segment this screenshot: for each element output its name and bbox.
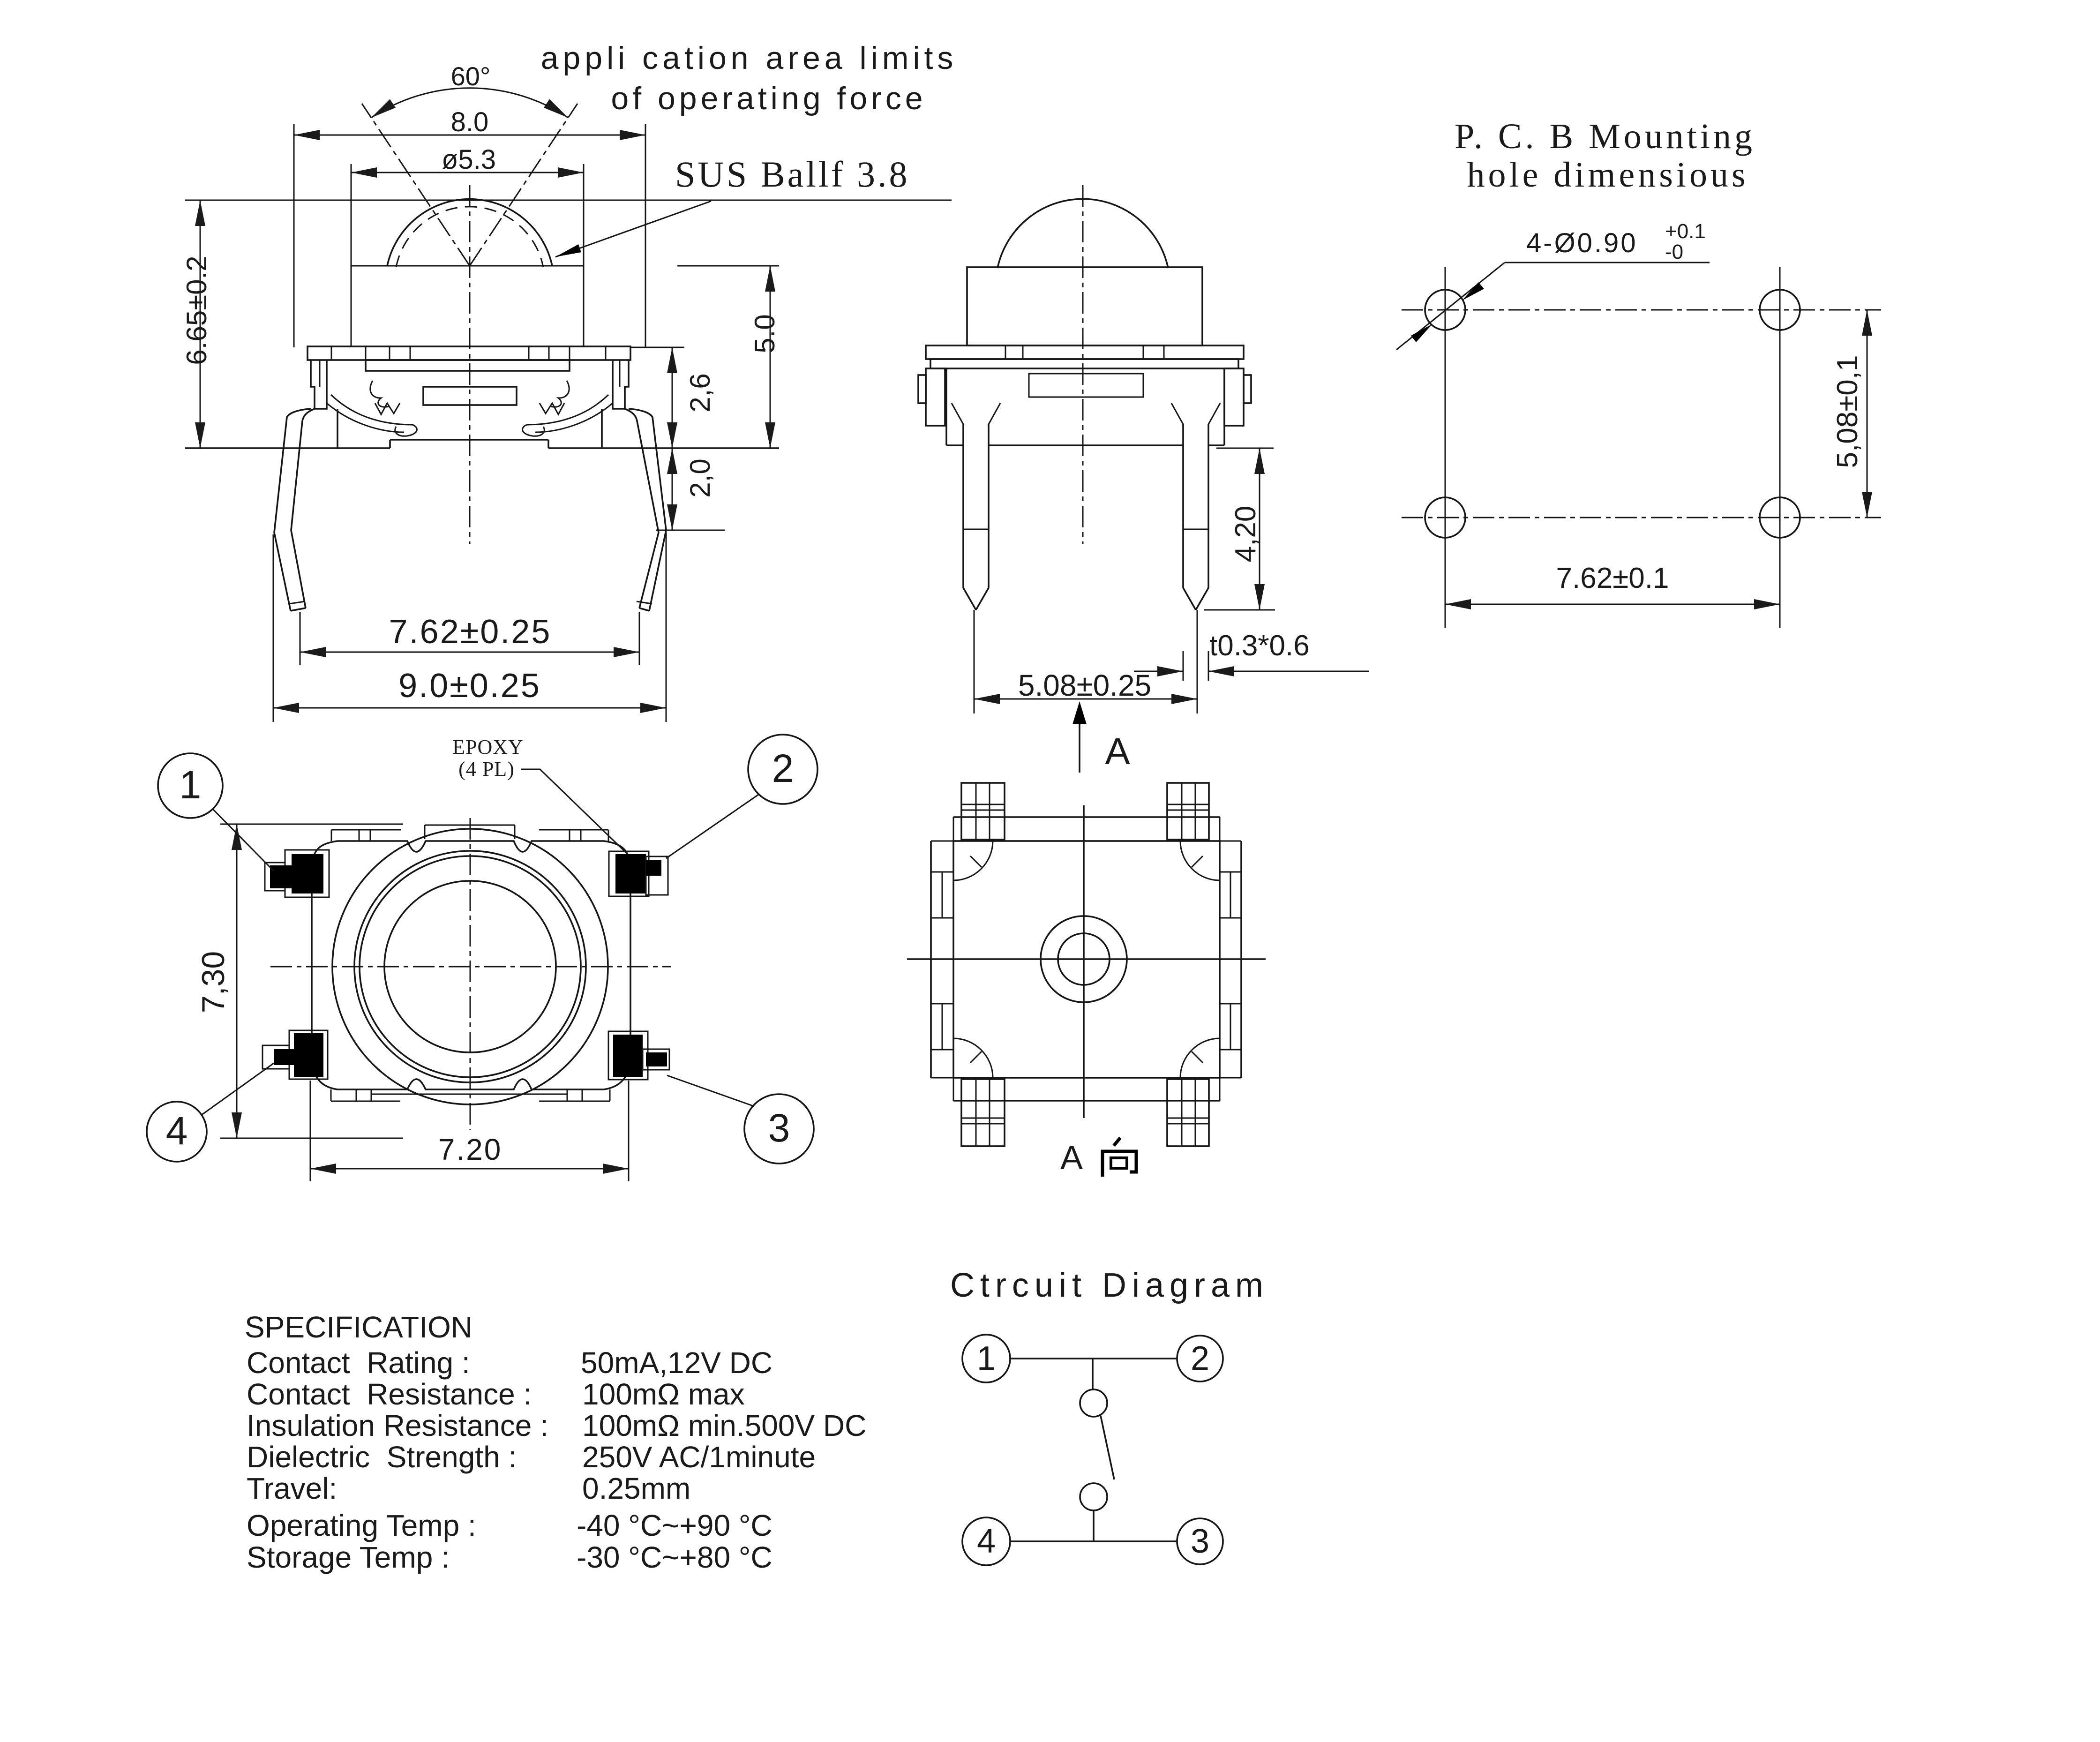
svg-text:7.62±0.25: 7.62±0.25 bbox=[389, 613, 552, 651]
svg-text:1: 1 bbox=[977, 1340, 996, 1377]
svg-text:t0.3*0.6: t0.3*0.6 bbox=[1209, 630, 1310, 662]
svg-text:100mΩ max: 100mΩ max bbox=[582, 1377, 745, 1411]
svg-text:appli cation area limits: appli cation area limits bbox=[541, 40, 958, 76]
svg-text:A: A bbox=[1060, 1139, 1083, 1177]
svg-text:5,08±0,1: 5,08±0,1 bbox=[1831, 355, 1864, 468]
svg-text:2,6: 2,6 bbox=[684, 373, 716, 412]
svg-text:P. C. B Mounting: P. C. B Mounting bbox=[1455, 117, 1755, 156]
svg-text:of operating force: of operating force bbox=[611, 81, 926, 116]
svg-text:+0.1: +0.1 bbox=[1665, 220, 1706, 243]
svg-text:5.08±0.25: 5.08±0.25 bbox=[1018, 668, 1151, 702]
svg-text:4,20: 4,20 bbox=[1230, 506, 1262, 563]
svg-text:SPECIFICATION: SPECIFICATION bbox=[245, 1310, 472, 1344]
svg-text:Storage Temp :: Storage Temp : bbox=[247, 1540, 450, 1574]
svg-text:4: 4 bbox=[166, 1109, 188, 1153]
svg-text:Contact Rating :: Contact Rating : bbox=[247, 1346, 470, 1380]
svg-text:50mA,12V DC: 50mA,12V DC bbox=[581, 1346, 772, 1380]
svg-text:hole dimensious: hole dimensious bbox=[1467, 155, 1748, 195]
svg-text:Insulation Resistance :: Insulation Resistance : bbox=[247, 1409, 548, 1442]
svg-text:ø5.3: ø5.3 bbox=[442, 144, 496, 175]
svg-text:Travel:: Travel: bbox=[247, 1472, 337, 1505]
svg-text:0.25mm: 0.25mm bbox=[582, 1472, 690, 1505]
svg-text:6.65±0.2: 6.65±0.2 bbox=[181, 255, 212, 365]
svg-text:4: 4 bbox=[977, 1523, 996, 1560]
svg-text:Ctrcuit Diagram: Ctrcuit Diagram bbox=[950, 1267, 1269, 1304]
svg-text:7.20: 7.20 bbox=[438, 1133, 502, 1166]
svg-text:2,0: 2,0 bbox=[684, 458, 716, 497]
svg-text:EPOXY: EPOXY bbox=[452, 736, 524, 758]
svg-text:-30 °C~+80 °C: -30 °C~+80 °C bbox=[577, 1540, 772, 1574]
svg-text:60°: 60° bbox=[451, 61, 491, 91]
svg-text:2: 2 bbox=[772, 746, 794, 790]
svg-text:9.0±0.25: 9.0±0.25 bbox=[398, 667, 541, 705]
svg-text:2: 2 bbox=[1191, 1340, 1209, 1377]
svg-text:-0: -0 bbox=[1665, 240, 1683, 263]
svg-text:-40 °C~+90 °C: -40 °C~+90 °C bbox=[577, 1509, 772, 1542]
svg-text:1: 1 bbox=[180, 763, 202, 807]
svg-text:Contact Resistance :: Contact Resistance : bbox=[247, 1377, 532, 1411]
svg-text:3: 3 bbox=[1191, 1523, 1209, 1560]
svg-text:SUS Ballf 3.8: SUS Ballf 3.8 bbox=[675, 154, 910, 195]
svg-text:100mΩ min.500V DC: 100mΩ min.500V DC bbox=[582, 1409, 866, 1442]
svg-text:7.62±0.1: 7.62±0.1 bbox=[1556, 562, 1669, 594]
svg-text:(4 PL): (4 PL) bbox=[458, 758, 515, 781]
svg-text:A: A bbox=[1105, 730, 1130, 772]
svg-text:250V AC/1minute: 250V AC/1minute bbox=[582, 1440, 816, 1474]
svg-text:3: 3 bbox=[768, 1106, 790, 1150]
svg-text:7,30: 7,30 bbox=[195, 951, 231, 1013]
svg-text:Operating Temp :: Operating Temp : bbox=[247, 1509, 476, 1542]
svg-text:5.0: 5.0 bbox=[749, 314, 780, 353]
svg-text:Dielectric Strength :: Dielectric Strength : bbox=[247, 1440, 517, 1474]
svg-text:8.0: 8.0 bbox=[451, 107, 489, 137]
svg-text:4-Ø0.90: 4-Ø0.90 bbox=[1526, 228, 1638, 258]
